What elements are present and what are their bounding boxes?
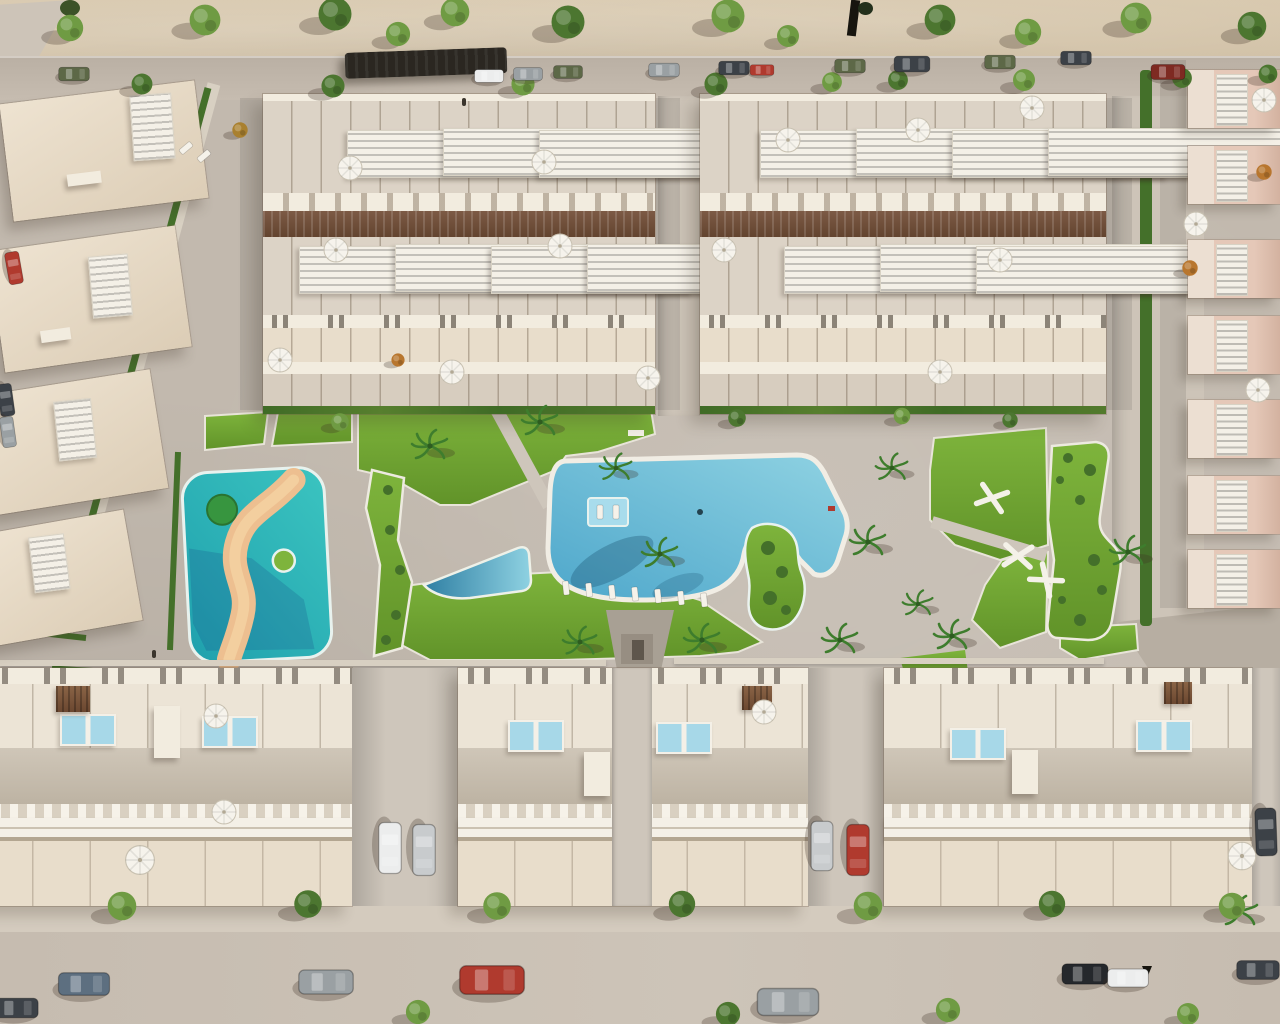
roof-louvre-panel [1216,320,1248,372]
amenity-south-wall [674,658,1104,664]
roof-louvre-panel [53,398,97,462]
clerestory-band [0,804,352,818]
right-house-unit [1188,146,1280,204]
facade-band [700,328,1106,362]
patio-band [263,374,655,406]
driveway-1 [352,668,458,906]
roof-louvre-panel [1216,150,1248,202]
street-facade [0,841,352,906]
planter-band [700,193,1106,211]
cast-shadow [240,98,264,410]
roof-louvre-panel [1216,74,1248,126]
driveway-2 [808,668,884,906]
facade-band [263,328,655,362]
rooftop-plunge-pools [60,714,116,746]
parapet [263,94,655,101]
rooftop-plunge-pools [1136,720,1192,752]
bottom-house-block-3 [884,668,1252,906]
driveway-3 [1252,668,1280,906]
aerial-development-render [0,0,1280,1024]
street-facade [884,841,1252,906]
main-roof [884,748,1252,804]
clerestory-band [884,804,1252,818]
person [152,650,156,658]
window-band [263,315,655,328]
right-house-unit [1188,476,1280,534]
stair-bulkhead [584,752,610,796]
wood-door [1164,682,1192,704]
rooftop-plunge-pools [202,716,258,748]
front-hedge [700,406,1106,414]
louvered-pergola [0,818,352,841]
planter-band [263,193,655,211]
amenity-south-wall [0,660,606,666]
parapet-band [700,362,1106,374]
front-hedge [263,406,655,414]
person [462,98,466,106]
rooftop-plunge-pools [508,720,564,752]
parapet [700,94,1106,101]
rooftop-plunge-pools [950,728,1006,760]
roof-louvre-panel [1216,554,1248,606]
patio-band [700,374,1106,406]
stair-bulkhead [1012,750,1038,794]
roof-louvre-panel [1216,404,1248,456]
bottom-sidewalk [0,906,1280,934]
roof-louvre-panel [1216,480,1248,532]
roof-louvre-panel [1216,244,1248,296]
left-apartment-1 [0,80,208,221]
right-house-unit [1188,550,1280,608]
dark-bush [858,2,873,15]
townhouse-block-a [263,94,655,414]
roof-louvre-panel [28,533,71,593]
bottom-house-block-1 [0,668,352,906]
roof-louvre-panel [88,253,133,318]
right-house-unit [1188,70,1280,128]
rear-wall-windows [884,668,1252,684]
bottom-street [0,932,1280,1024]
roof-terraces [884,684,1252,748]
pergola-band [700,211,1106,237]
window-band [700,315,1106,328]
roof-stair [67,171,102,187]
rooftop-plunge-pools [656,722,712,754]
louvered-pergola [884,818,1252,841]
stair-bulkhead [154,706,180,758]
dark-bush [60,0,80,16]
right-house-unit [1188,400,1280,458]
wood-pergola [56,686,90,712]
townhouse-block-b [700,94,1106,414]
rear-wall-windows [0,668,352,684]
wood-pergola [742,686,772,710]
roof-stair [40,327,71,343]
pergola-band [263,211,655,237]
parapet-band [263,362,655,374]
roof-louvre-panel [129,93,176,162]
right-house-unit [1188,240,1280,298]
block-2-passage [612,668,652,906]
right-house-unit [1188,316,1280,374]
